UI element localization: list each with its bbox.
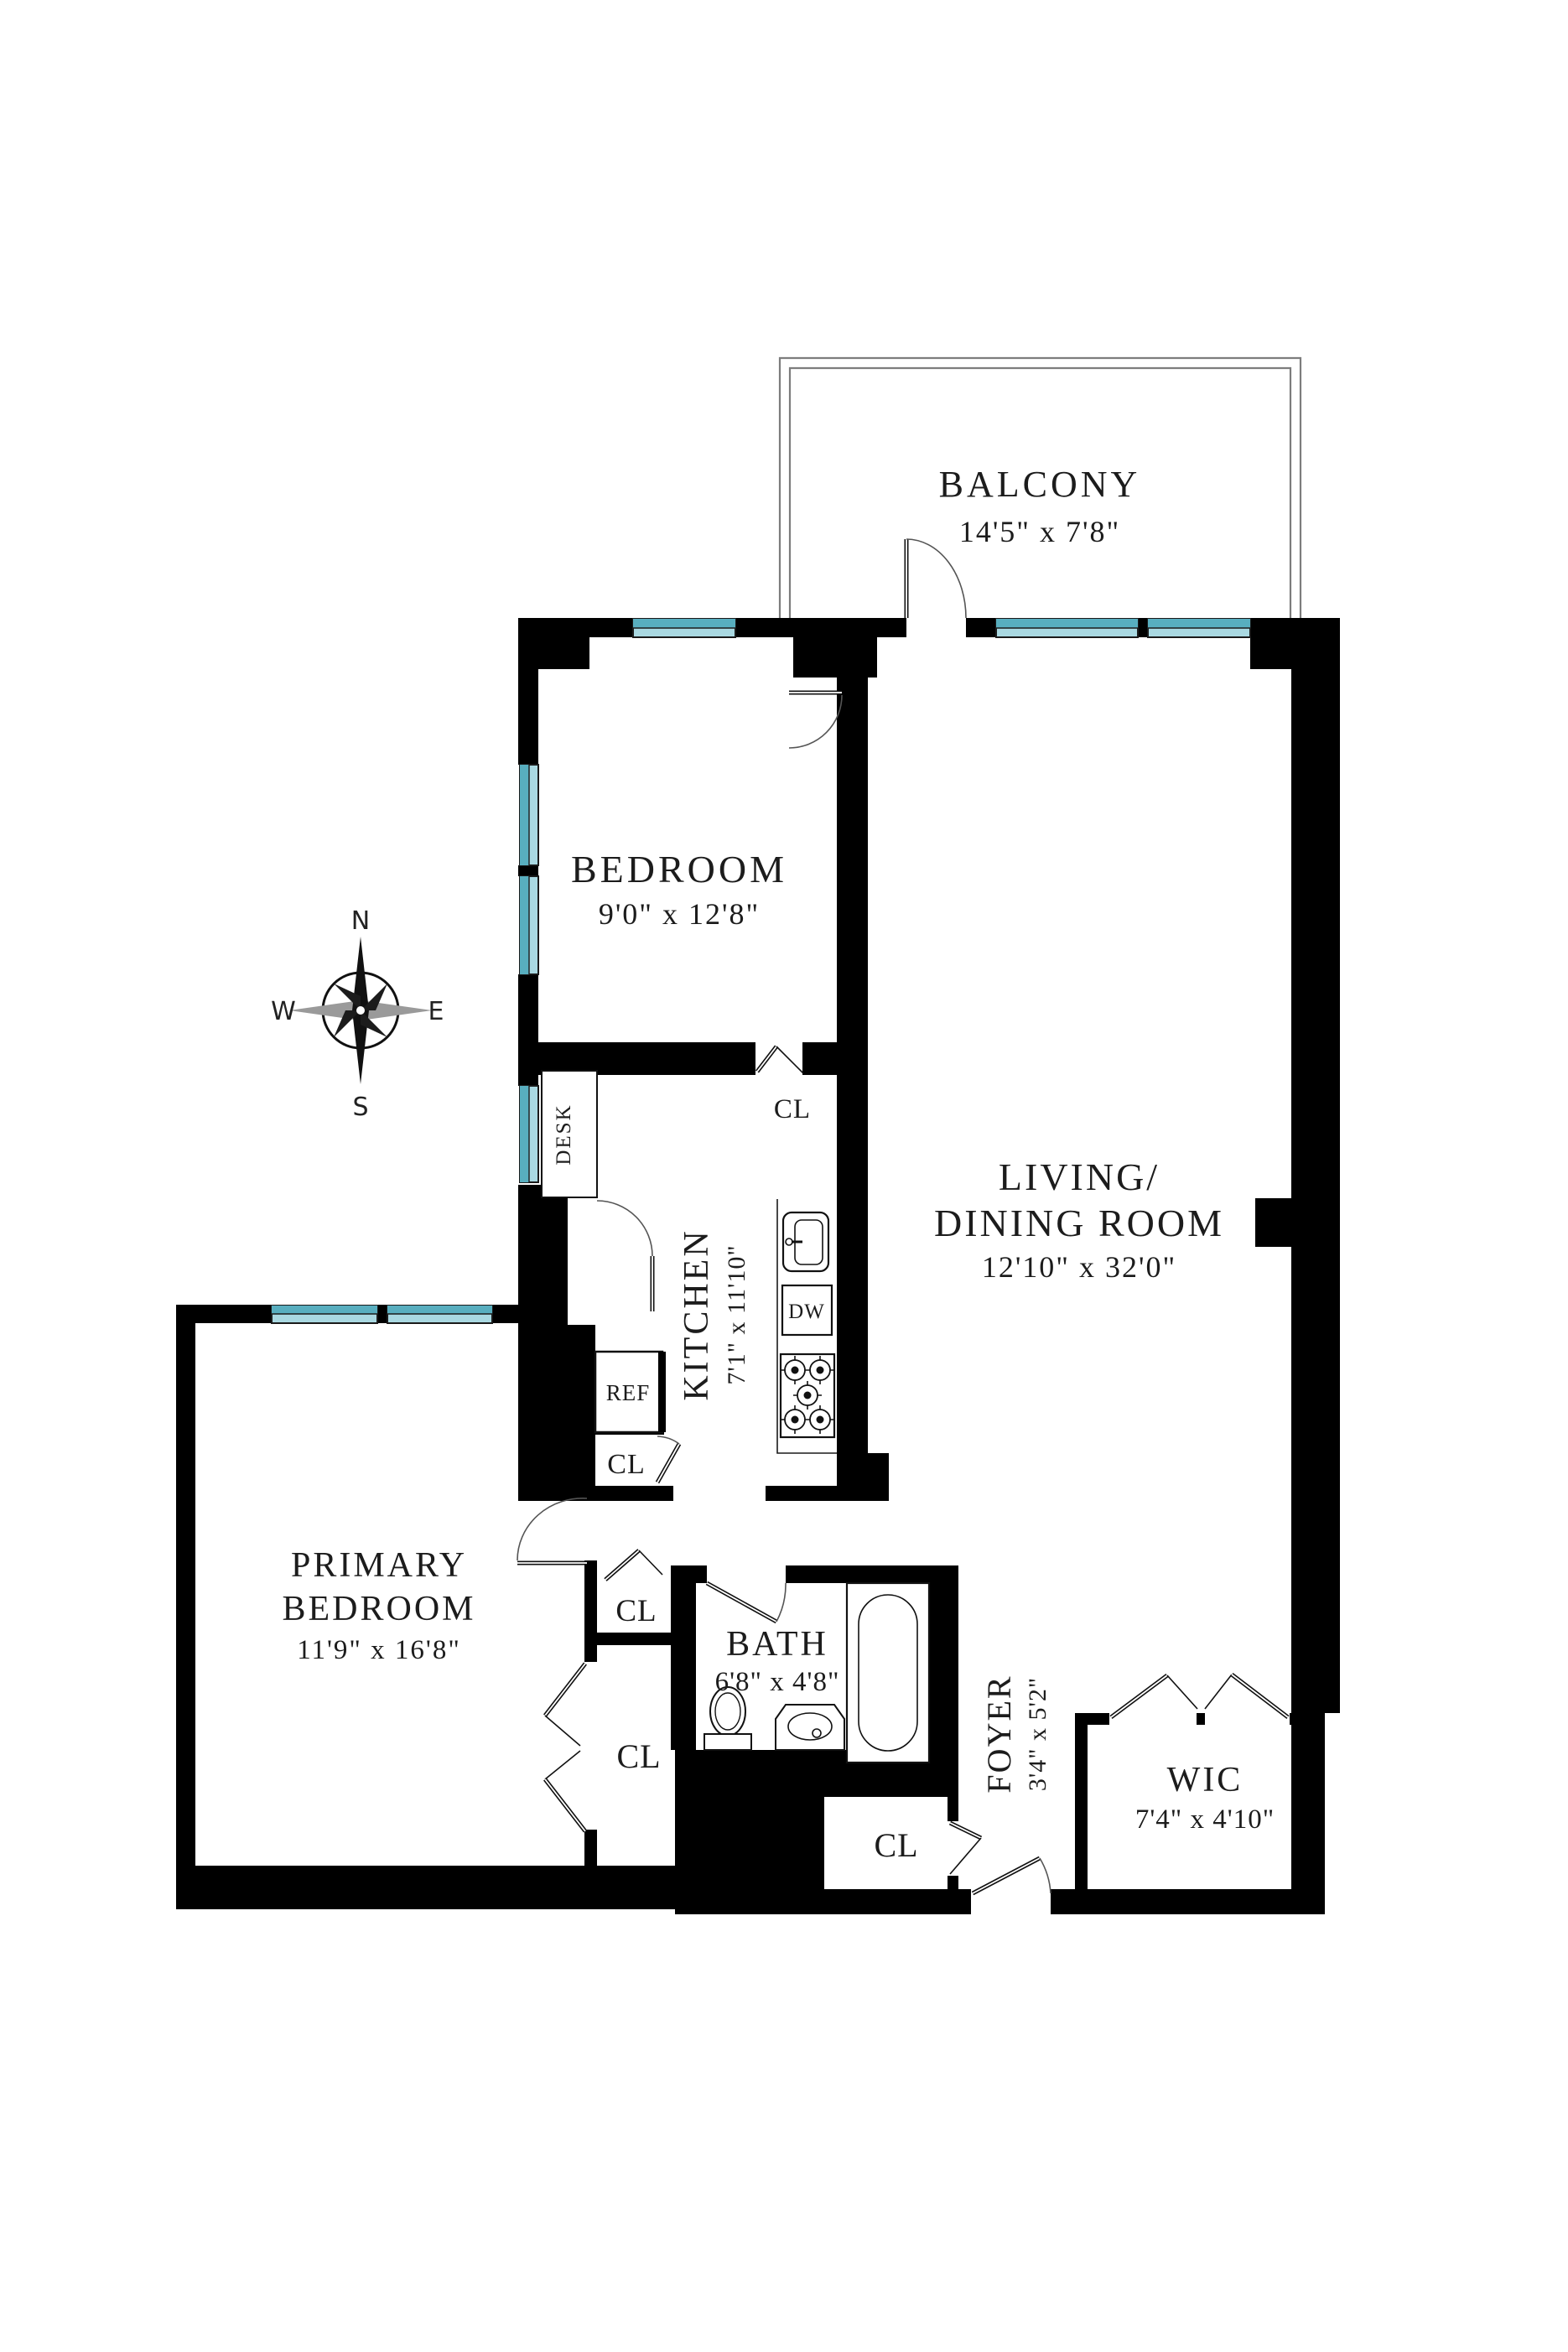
hall-closet-label: CL: [615, 1594, 657, 1628]
bifold-door-glyph: [545, 1664, 585, 1831]
window-glyph: [387, 1306, 492, 1323]
kitchen-sink-icon: [783, 1212, 828, 1271]
compass-west: W: [271, 997, 296, 1026]
window-glyph: [520, 876, 538, 974]
primary-bedroom-label-line2: BEDROOM: [282, 1590, 475, 1628]
living-dining-label-line2: DINING ROOM: [934, 1202, 1224, 1244]
window-glyph: [520, 765, 538, 865]
kitchen-dims: 7'1" x 11'10": [723, 1244, 750, 1384]
coat-closet-label: CL: [874, 1826, 918, 1864]
window-glyph: [996, 619, 1138, 637]
dishwasher-label: DW: [788, 1301, 825, 1323]
primary-bedroom-dims: 11'9" x 16'8": [297, 1635, 461, 1665]
kitchen-label: KITCHEN: [678, 1228, 716, 1400]
door-swing-glyph: [597, 1201, 652, 1311]
door-swing-glyph: [906, 539, 966, 618]
wic-label: WIC: [1167, 1761, 1243, 1799]
desk-label: DESK: [553, 1103, 575, 1165]
door-swing-glyph: [789, 693, 842, 748]
living-dining-dims: 12'10" x 32'0": [982, 1250, 1176, 1284]
window-glyph: [1148, 619, 1250, 637]
window-glyph: [520, 1086, 538, 1182]
door-swing-glyph: [657, 1436, 679, 1482]
compass-north: N: [351, 906, 370, 936]
vanity-sink-icon: [776, 1705, 844, 1750]
bedroom-dims: 9'0" x 12'8": [599, 897, 760, 931]
foyer-label: FOYER: [980, 1674, 1018, 1793]
bifold-door-glyph: [605, 1550, 662, 1580]
door-swing-glyph: [707, 1583, 786, 1622]
wic-dims: 7'4" x 4'10": [1135, 1804, 1275, 1835]
bathtub-icon: [847, 1583, 929, 1763]
compass-south: S: [352, 1093, 368, 1122]
floor-plan-page: N S W E BALCONY 14'5" x 7'8" BEDROOM 9'0…: [0, 0, 1568, 2352]
compass-east: E: [428, 997, 444, 1026]
balcony-dims: 14'5" x 7'8": [959, 515, 1120, 548]
balcony-label: BALCONY: [939, 464, 1141, 505]
refrigerator-label: REF: [606, 1380, 651, 1405]
compass-rose-icon: N S W E: [271, 906, 444, 1122]
bifold-door-glyph: [1111, 1674, 1288, 1717]
bifold-door-glyph: [950, 1823, 981, 1874]
floor-plan-drawing: N S W E BALCONY 14'5" x 7'8" BEDROOM 9'0…: [0, 0, 1568, 2352]
bifold-door-glyph: [757, 1046, 803, 1073]
stove-icon: [781, 1354, 834, 1437]
bath-dims: 6'8" x 4'8": [715, 1667, 840, 1697]
bedroom-label: BEDROOM: [571, 848, 787, 890]
kitchen-closet-label: CL: [607, 1449, 645, 1480]
window-glyph: [272, 1306, 377, 1323]
door-swing-glyph: [517, 1498, 587, 1563]
primary-closet-label: CL: [616, 1737, 661, 1775]
window-glyph: [633, 619, 735, 637]
living-dining-label-line1: LIVING/: [999, 1155, 1160, 1198]
door-swing-glyph: [973, 1858, 1051, 1893]
bedroom-closet-label: CL: [774, 1094, 811, 1124]
bath-label: BATH: [726, 1625, 828, 1664]
foyer-dims: 3'4" x 5'2": [1024, 1677, 1051, 1791]
primary-bedroom-label-line1: PRIMARY: [291, 1546, 467, 1585]
